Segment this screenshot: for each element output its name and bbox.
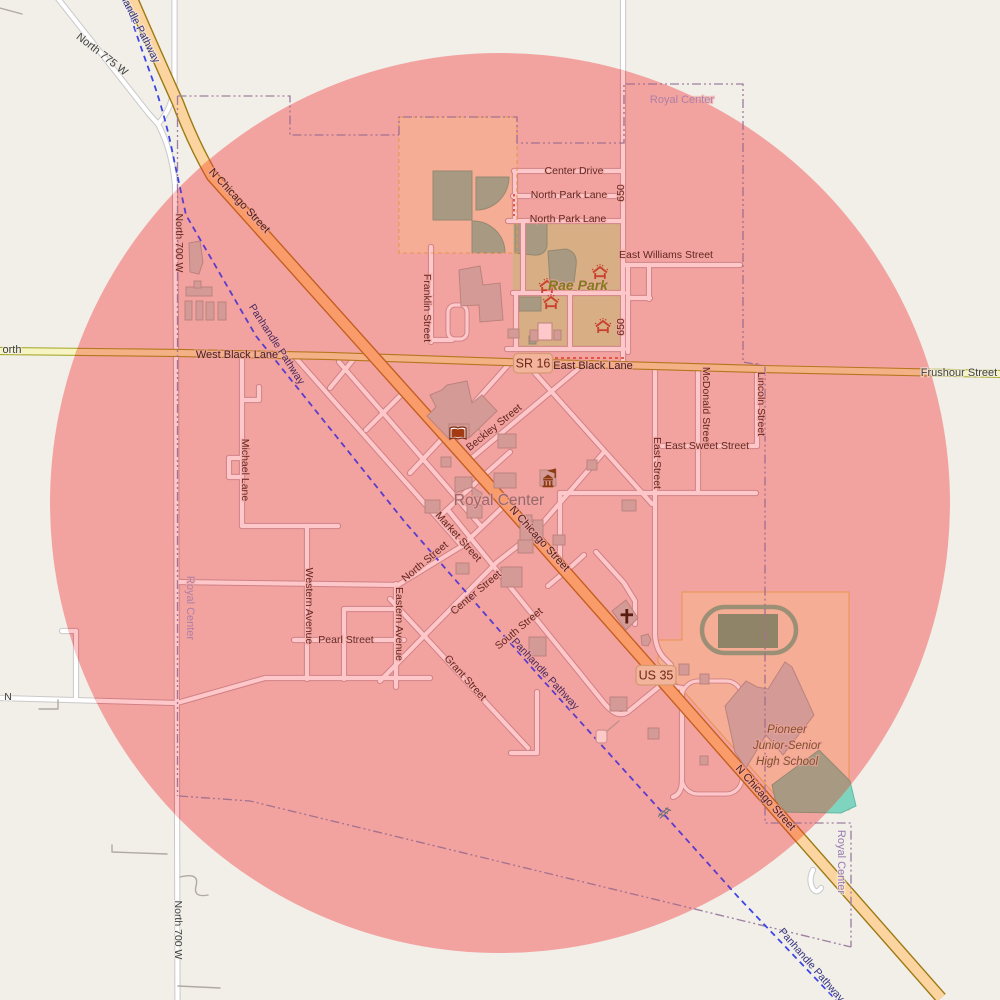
svg-text:High School: High School	[756, 756, 818, 768]
svg-text:Royal Center: Royal Center	[184, 576, 196, 641]
svg-text:650: 650	[615, 184, 627, 202]
svg-text:SR 16: SR 16	[516, 356, 551, 370]
svg-text:Pioneer: Pioneer	[767, 724, 808, 736]
svg-text:Junior-Senior: Junior-Senior	[752, 740, 822, 752]
svg-text:Michael Lane: Michael Lane	[239, 439, 251, 502]
svg-text:Royal Center: Royal Center	[835, 830, 847, 895]
svg-text:Frushour Street: Frushour Street	[921, 367, 997, 379]
svg-text:North 700 W: North 700 W	[173, 214, 185, 273]
svg-text:Franklin Street: Franklin Street	[421, 274, 433, 342]
svg-text:Eastern Avenue: Eastern Avenue	[393, 587, 405, 661]
svg-text:North Park Lane: North Park Lane	[531, 189, 608, 201]
svg-text:Lincoln Street: Lincoln Street	[755, 372, 767, 436]
svg-text:Royal Center: Royal Center	[650, 94, 715, 106]
svg-text:N: N	[4, 691, 12, 703]
svg-text:Center Drive: Center Drive	[545, 165, 604, 177]
svg-text:East Sweet Street: East Sweet Street	[665, 440, 749, 452]
svg-text:Rae Park: Rae Park	[548, 277, 609, 293]
svg-text:West Black Lane: West Black Lane	[196, 349, 278, 361]
svg-text:North Park Lane: North Park Lane	[530, 213, 607, 225]
svg-text:Western Avenue: Western Avenue	[303, 568, 315, 645]
svg-text:Pearl Street: Pearl Street	[318, 634, 374, 646]
svg-text:East Street: East Street	[651, 437, 663, 489]
svg-text:North 700 W: North 700 W	[172, 901, 184, 960]
svg-text:East Black Lane: East Black Lane	[553, 360, 633, 372]
svg-text:US 35: US 35	[639, 668, 674, 682]
svg-text:Royal Center: Royal Center	[454, 492, 544, 509]
svg-text:McDonald Street: McDonald Street	[700, 367, 712, 445]
svg-text:650: 650	[615, 318, 627, 336]
svg-text:East Williams Street: East Williams Street	[619, 249, 713, 261]
svg-text:orth: orth	[3, 344, 22, 356]
